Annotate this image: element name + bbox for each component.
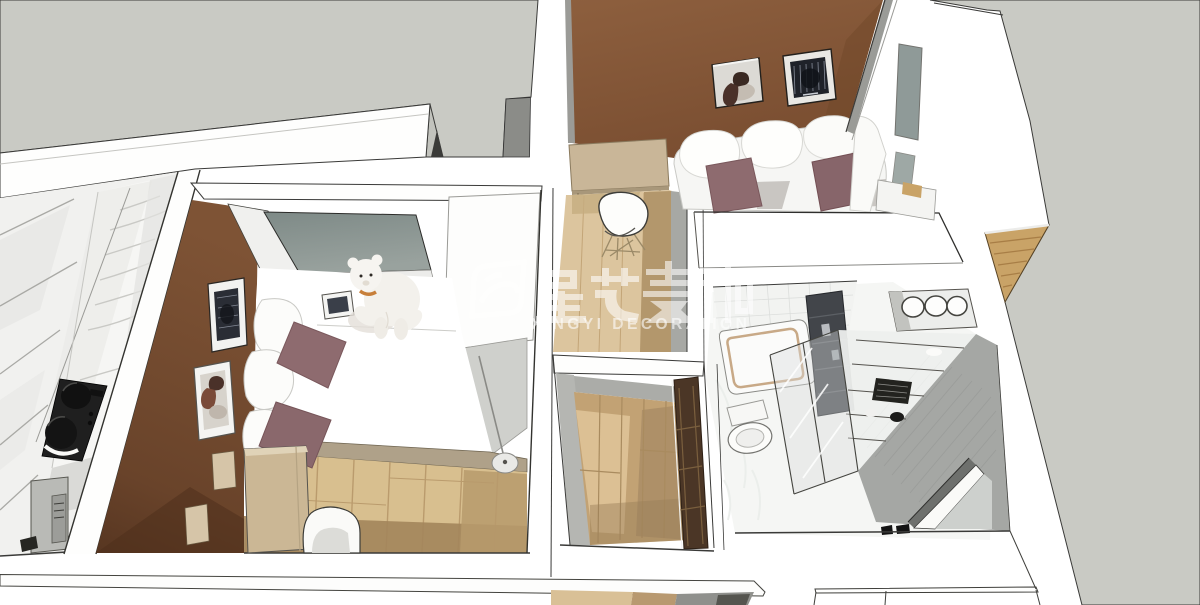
svg-text:XINGYI DECORATION: XINGYI DECORATION (531, 316, 750, 333)
